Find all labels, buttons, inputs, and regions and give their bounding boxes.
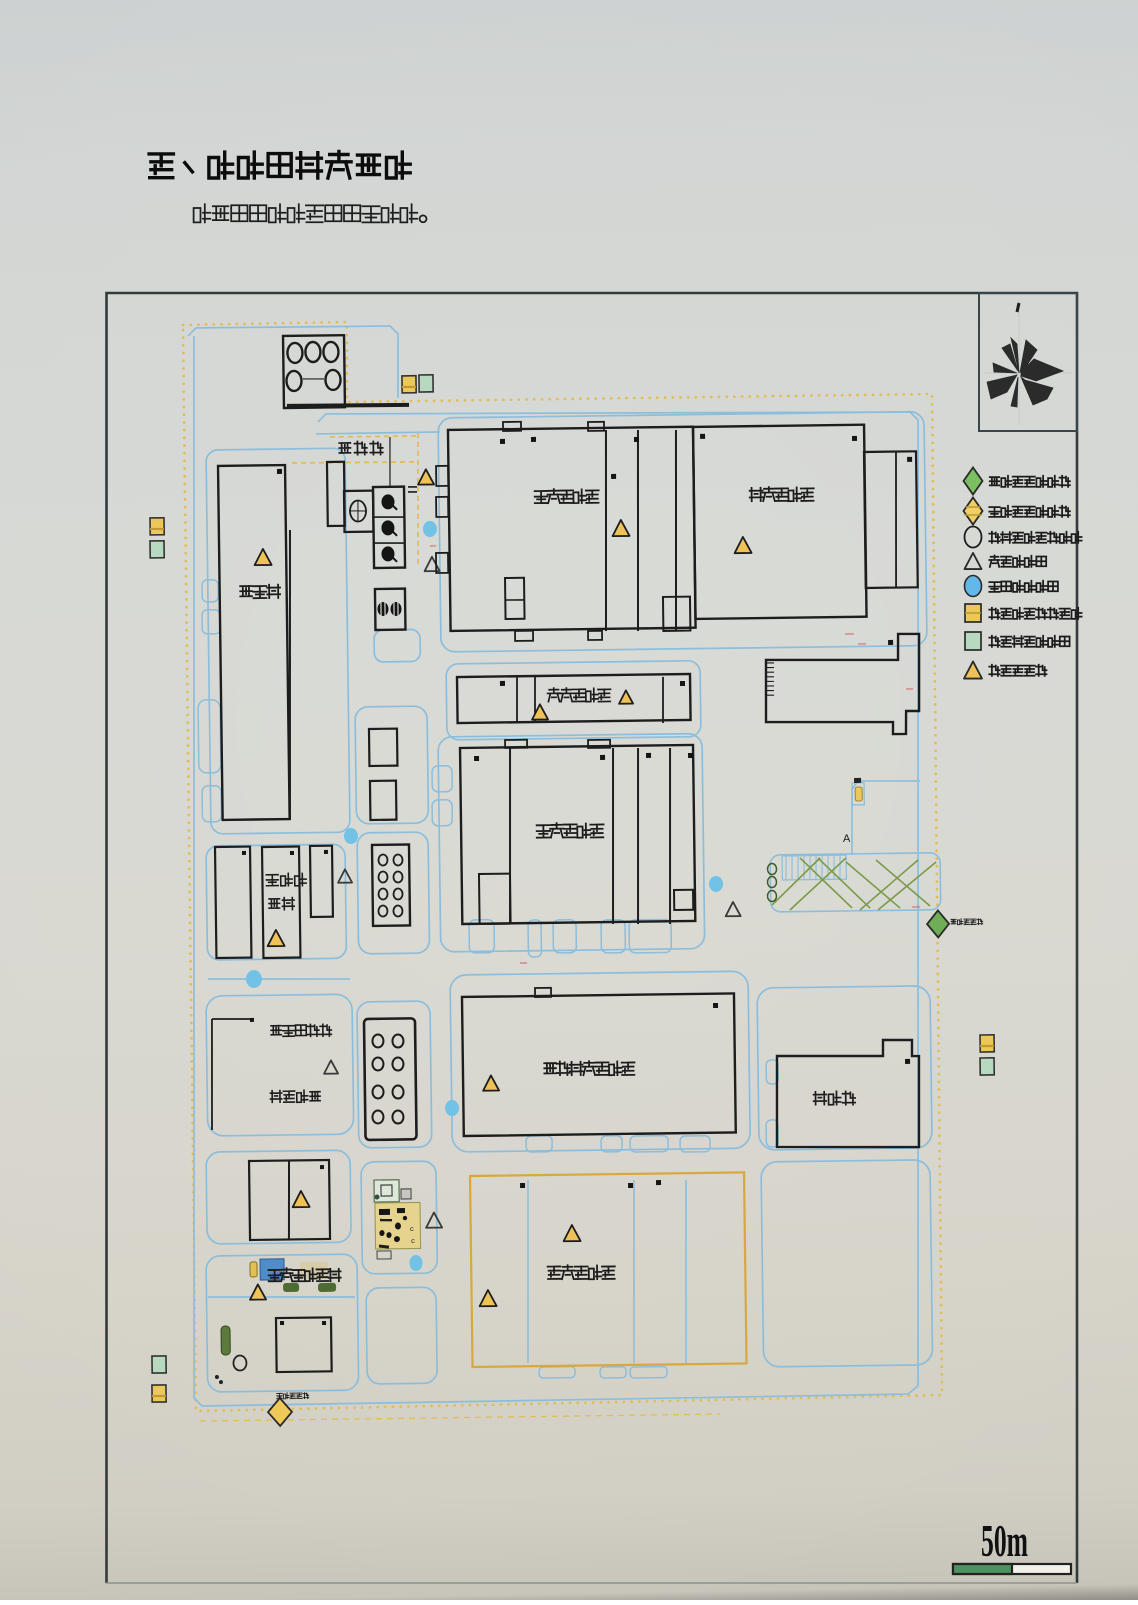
svg-text:c: c (411, 1238, 415, 1246)
svg-text:A: A (843, 833, 851, 845)
svg-text:50m: 50m (981, 1515, 1028, 1566)
svg-text:c: c (410, 1226, 414, 1234)
